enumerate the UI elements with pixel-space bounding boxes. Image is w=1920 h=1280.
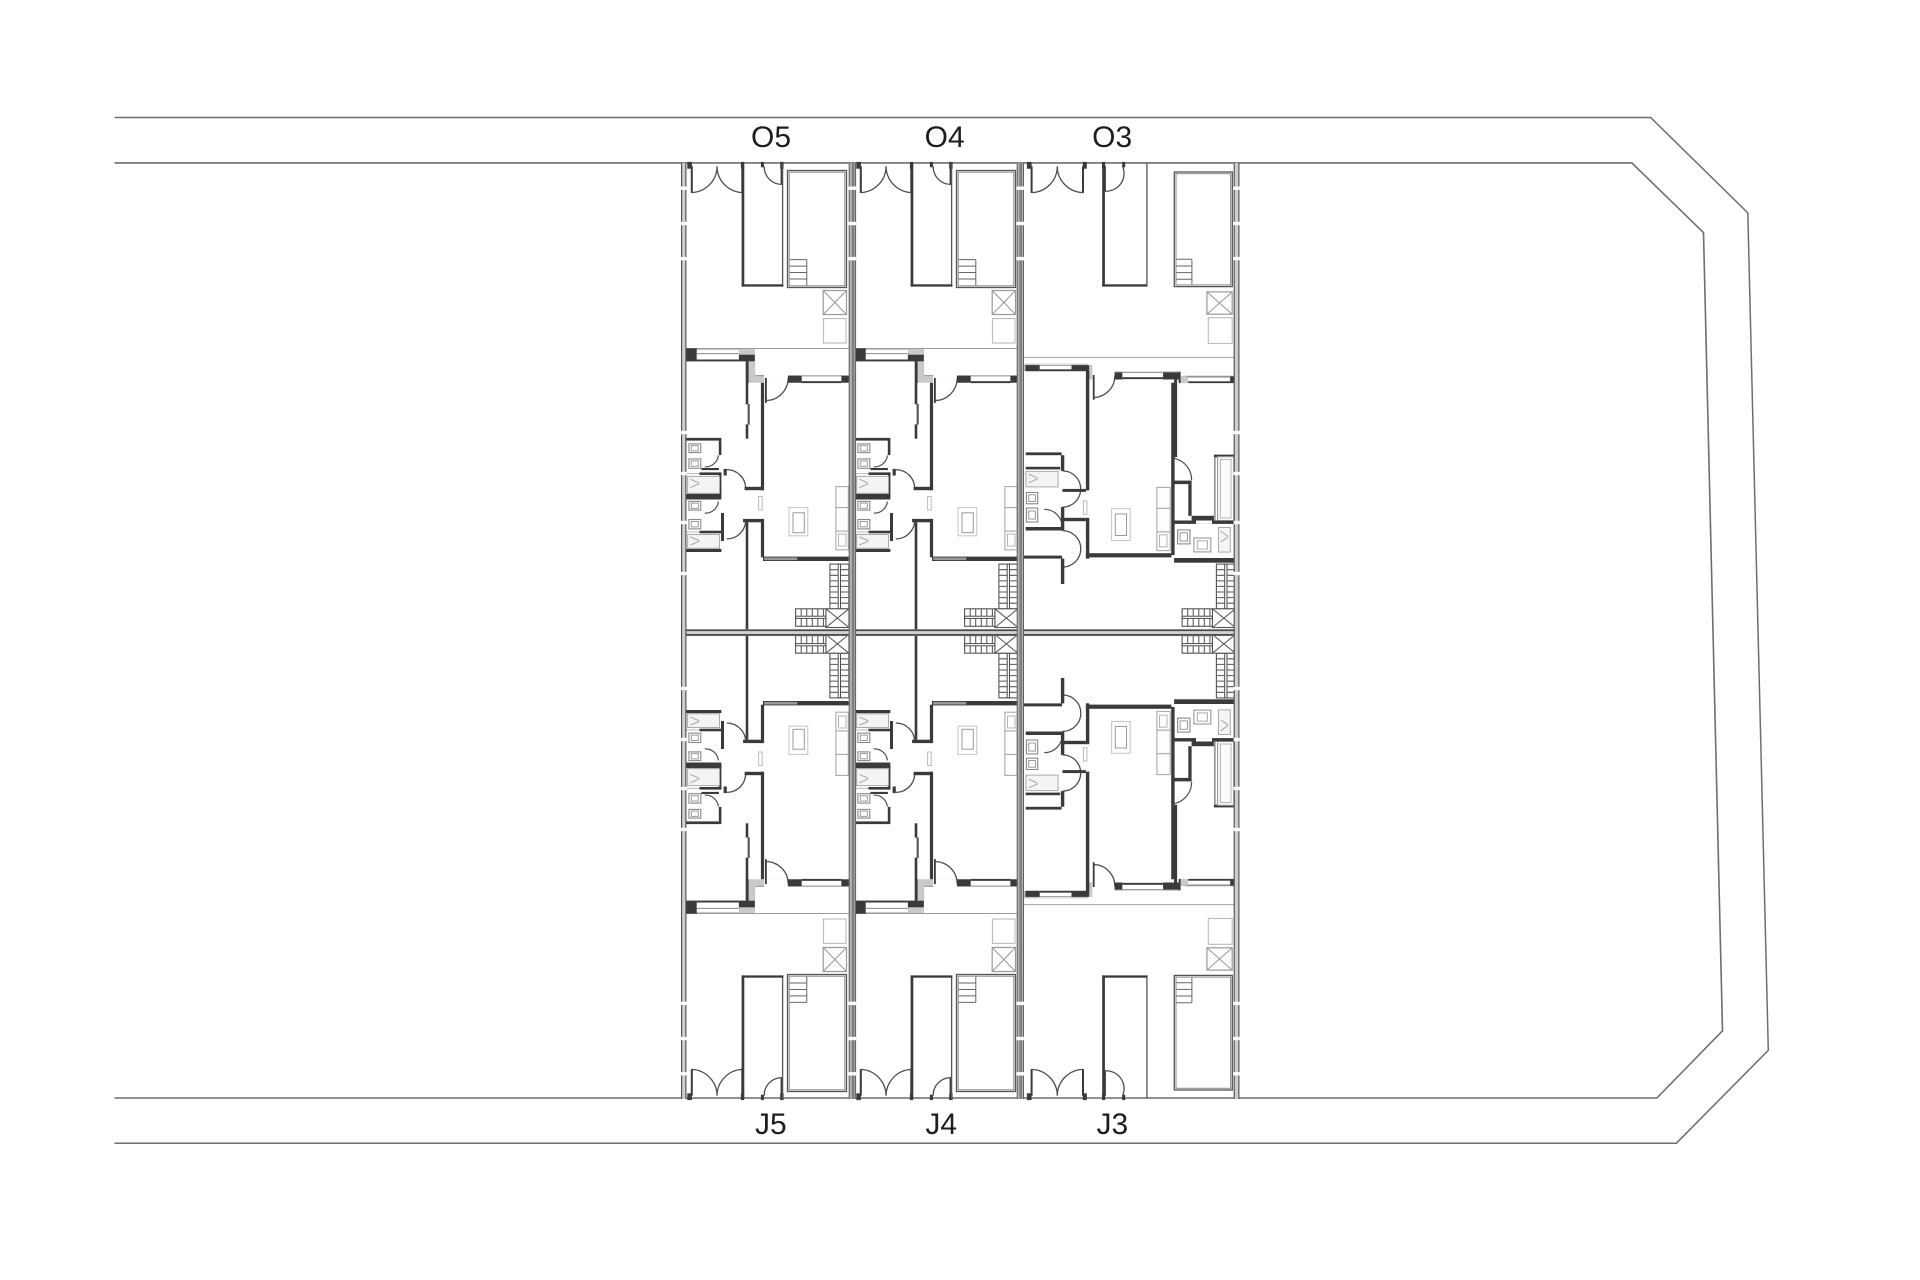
- svg-text:O4: O4: [925, 121, 965, 154]
- svg-text:O3: O3: [1092, 121, 1132, 154]
- svg-text:O5: O5: [751, 121, 791, 154]
- svg-text:J5: J5: [755, 1108, 787, 1141]
- svg-text:J4: J4: [925, 1108, 957, 1141]
- svg-text:J3: J3: [1097, 1108, 1129, 1141]
